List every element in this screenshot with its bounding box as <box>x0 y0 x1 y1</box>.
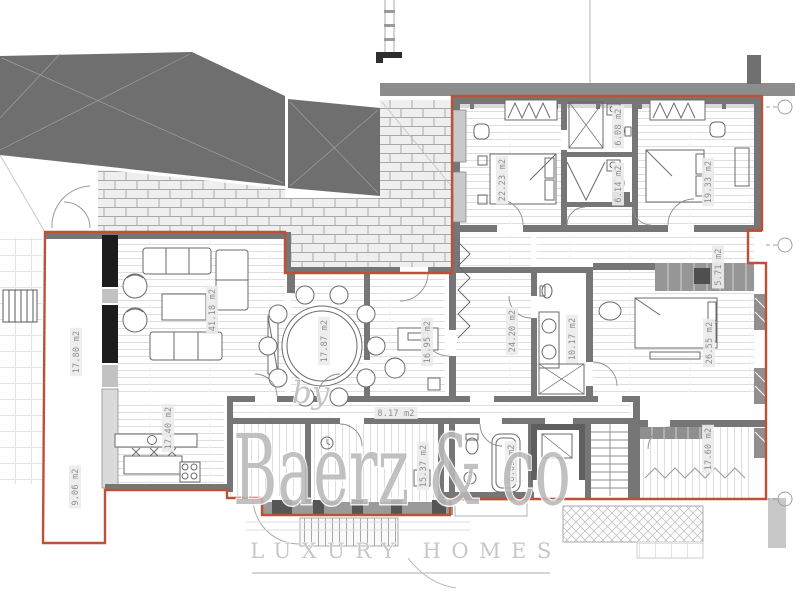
survey-diagonal <box>0 155 45 232</box>
brick-area-right <box>380 100 455 273</box>
room-area-text: 6.14 m2 <box>614 165 624 202</box>
wall-corner-mark <box>376 52 402 58</box>
entry-door-arc-2 <box>64 202 90 228</box>
floor-plan-screenshot: 17.80 m29.06 m241.18 m217.87 m216.95 m21… <box>0 0 800 600</box>
coffee-table <box>162 294 206 320</box>
room-area-text: 26.55 m2 <box>705 322 715 365</box>
room-label-study: 16.95 m2 <box>421 318 433 366</box>
watermark-by: by <box>292 375 330 411</box>
room-label-master-bedroom: 26.55 m2 <box>703 319 715 367</box>
island <box>124 456 182 474</box>
brick-area-mid <box>285 198 380 273</box>
room-area-text: 5.71 m2 <box>714 248 724 285</box>
room-label-bedroom-3: 17.60 m2 <box>702 425 714 473</box>
room-label-terrace-lower-left: 9.06 m2 <box>69 465 81 508</box>
room-area-text: 22.23 m2 <box>498 159 508 202</box>
room-label-bathroom-2: 6.14 m2 <box>612 162 624 205</box>
room-label-dressing: 5.71 m2 <box>712 245 724 288</box>
armchair <box>123 308 147 332</box>
bed <box>646 150 704 202</box>
room-label-hallway: 24.20 m2 <box>506 307 518 355</box>
sofa <box>150 332 222 360</box>
top-right-block <box>747 55 761 84</box>
left-terrace-tiles <box>0 238 42 484</box>
bottom-right-tiles <box>637 542 703 558</box>
room-area-text: 41.18 m2 <box>208 289 218 332</box>
room-label-bedroom-1: 22.23 m2 <box>496 156 508 204</box>
room-area-text: 17.60 m2 <box>704 428 714 471</box>
room-label-master-bathroom: 10.17 m2 <box>566 315 578 363</box>
room-area-text: 17.40 m2 <box>164 407 174 450</box>
room-area-text: 24.20 m2 <box>508 310 518 353</box>
right-windows <box>754 294 766 458</box>
stairs <box>591 424 628 496</box>
room-area-text: 17.87 m2 <box>320 320 330 363</box>
room-label-terrace-upper-left: 17.80 m2 <box>70 328 82 376</box>
sofa <box>143 248 211 274</box>
walkin-rail <box>567 162 605 200</box>
room-area-text: 6.08 m2 <box>614 108 624 145</box>
top-wall-band <box>380 83 795 96</box>
room-label-bathroom-1: 6.08 m2 <box>612 105 624 148</box>
left-stair-block <box>3 290 37 322</box>
room-area-text: 9.06 m2 <box>71 468 81 505</box>
room-label-living-room: 41.18 m2 <box>206 286 218 334</box>
chair <box>599 302 621 320</box>
entry-door-arc-1 <box>52 186 90 228</box>
room-label-bedroom-2: 19.33 m2 <box>702 158 714 206</box>
room-area-text: 10.17 m2 <box>568 318 578 361</box>
grid-bubbles <box>766 100 792 506</box>
floor-plan-drawing: 17.80 m29.06 m241.18 m217.87 m216.95 m21… <box>0 0 800 600</box>
room-area-text: 17.80 m2 <box>72 331 82 374</box>
watermark-brand: Baerz & co <box>233 415 571 528</box>
room-label-dining-room: 17.87 m2 <box>318 317 330 365</box>
room-area-text: 16.95 m2 <box>423 321 433 364</box>
bottom-ramp-hatch <box>563 506 703 542</box>
room-label-kitchen: 17.40 m2 <box>162 404 174 452</box>
room-area-text: 19.33 m2 <box>704 161 714 204</box>
watermark-tagline: LUXURY HOMES <box>250 539 562 563</box>
armchair <box>123 274 147 298</box>
